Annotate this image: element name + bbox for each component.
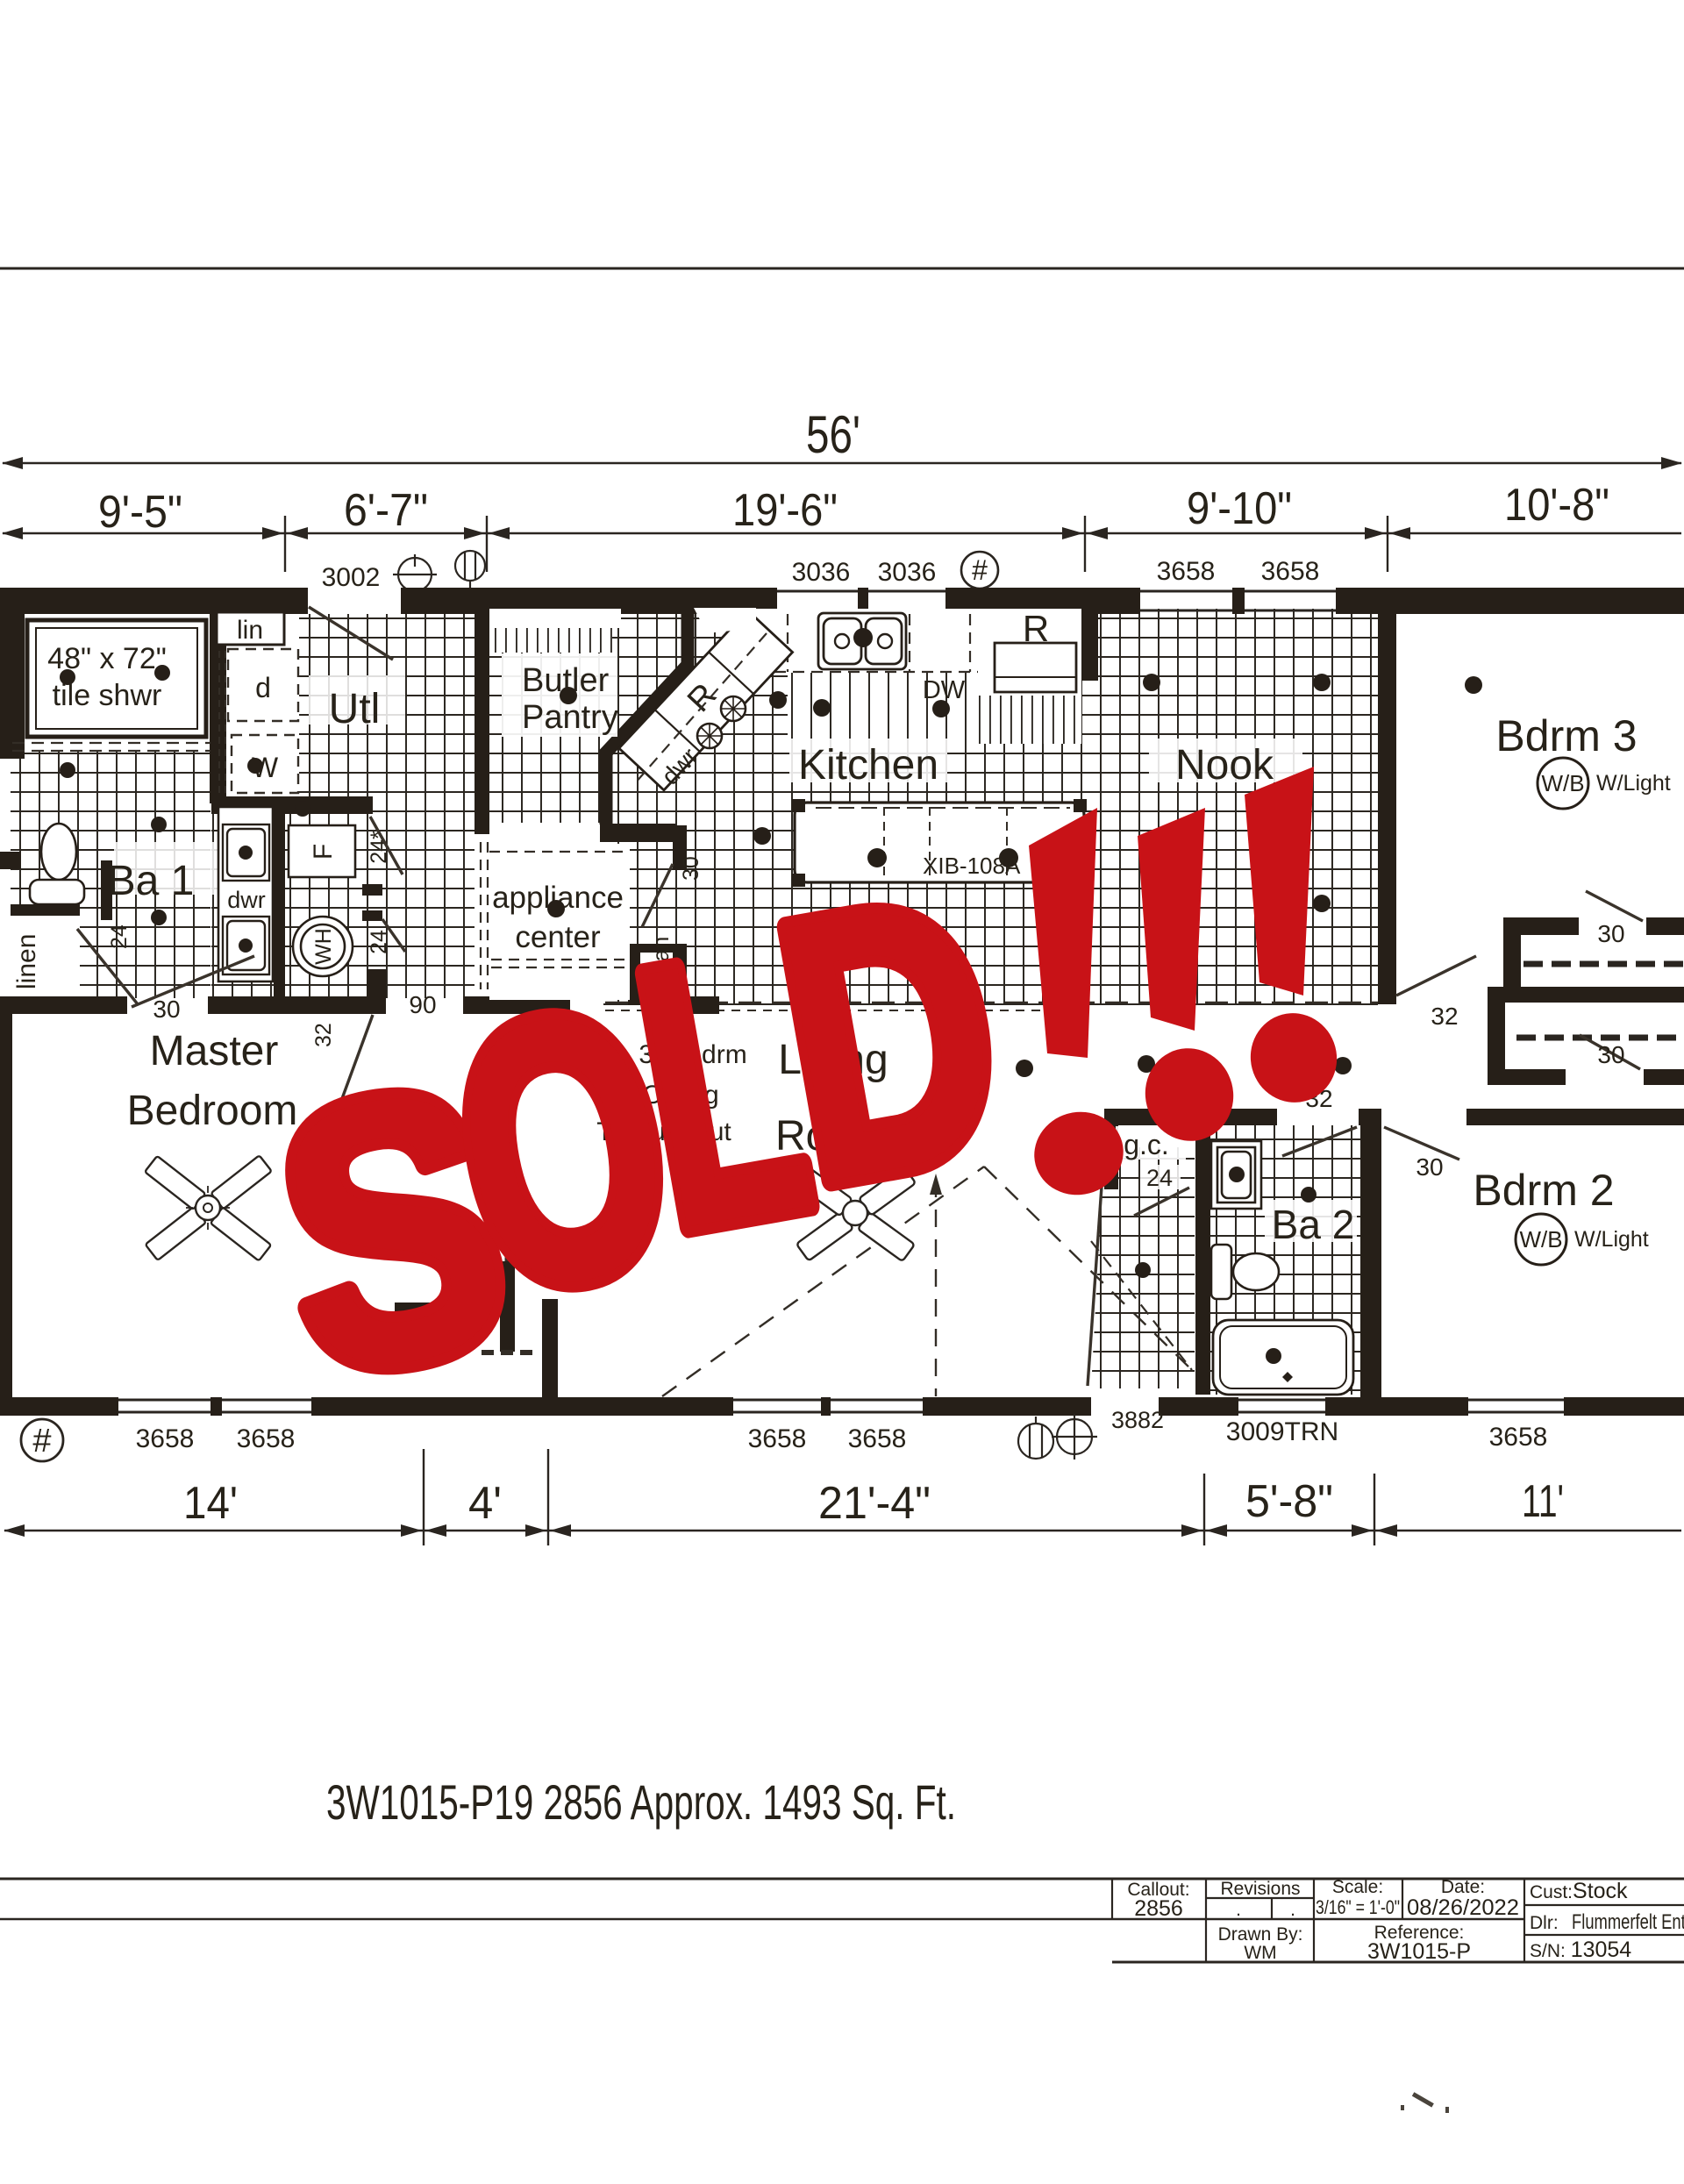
svg-text:.: . [1236, 1900, 1241, 1920]
svg-text:30: 30 [1597, 920, 1624, 947]
svg-text:Bdrm 2: Bdrm 2 [1473, 1166, 1614, 1215]
svg-text:Scale:: Scale: [1332, 1877, 1383, 1897]
svg-text:F: F [309, 844, 338, 860]
svg-text:WH: WH [311, 928, 336, 965]
svg-text:Ba 2: Ba 2 [1272, 1202, 1355, 1247]
svg-text:3658: 3658 [848, 1424, 907, 1453]
svg-text:Nook: Nook [1175, 742, 1274, 789]
svg-text:3658: 3658 [237, 1424, 296, 1453]
svg-text:W/Light: W/Light [1574, 1227, 1649, 1252]
svg-text:3658: 3658 [1157, 557, 1216, 586]
svg-text:2856: 2856 [1134, 1896, 1183, 1921]
svg-text:24: 24 [107, 924, 132, 949]
svg-text:WM: WM [1244, 1943, 1276, 1963]
svg-text:.: . [1290, 1900, 1295, 1920]
svg-text:g.c.: g.c. [1124, 1129, 1169, 1160]
svg-text:Bdrm 3: Bdrm 3 [1495, 711, 1637, 760]
svg-text:3658: 3658 [136, 1424, 195, 1453]
svg-text:Utl: Utl [329, 686, 381, 732]
svg-text:14': 14' [183, 1478, 238, 1529]
svg-text:Revisions: Revisions [1220, 1879, 1300, 1899]
svg-text:10'-8": 10'-8" [1504, 480, 1609, 531]
svg-text:Pantry: Pantry [522, 699, 618, 736]
svg-text:30: 30 [679, 856, 703, 881]
svg-text:30: 30 [1597, 1041, 1624, 1068]
svg-text:3009TRN: 3009TRN [1226, 1417, 1338, 1446]
svg-text:56': 56' [806, 405, 860, 464]
svg-text:lin: lin [237, 616, 263, 645]
svg-text:d: d [255, 672, 271, 703]
svg-text:linen: linen [12, 934, 41, 989]
svg-text:#: # [972, 554, 988, 586]
svg-text:W/Light: W/Light [1596, 771, 1671, 796]
svg-text:3W1015-P: 3W1015-P [1367, 1939, 1471, 1964]
svg-text:3036: 3036 [792, 558, 851, 587]
svg-text:21'-4": 21'-4" [818, 1478, 931, 1529]
svg-text:19'-6": 19'-6" [732, 485, 838, 536]
svg-text:08/26/2022: 08/26/2022 [1407, 1895, 1519, 1920]
svg-text:5'-8": 5'-8" [1245, 1476, 1333, 1527]
svg-text:Dlr:: Dlr: [1530, 1913, 1559, 1933]
svg-text:Drawn By:: Drawn By: [1218, 1924, 1303, 1945]
svg-text:30: 30 [153, 996, 180, 1023]
svg-text:#: # [32, 1423, 51, 1460]
svg-text:3658: 3658 [1261, 557, 1320, 586]
svg-text:Ba 1: Ba 1 [108, 858, 195, 904]
svg-text:3036: 3036 [878, 558, 937, 587]
svg-text:Date:: Date: [1441, 1877, 1485, 1897]
svg-text:3658: 3658 [1489, 1423, 1548, 1452]
svg-text:Kitchen: Kitchen [798, 742, 938, 789]
svg-text:11': 11' [1522, 1476, 1564, 1527]
svg-text:24: 24 [367, 930, 391, 954]
svg-text:3882: 3882 [1111, 1407, 1164, 1433]
svg-text:W/B: W/B [1519, 1226, 1562, 1253]
svg-text:dwr: dwr [227, 887, 266, 913]
svg-text:4': 4' [468, 1478, 502, 1529]
svg-text:3W1015-P19 2856 Approx. 1493: 3W1015-P19 2856 Approx. 1493 Sq. Ft. [326, 1774, 956, 1830]
svg-text:30: 30 [1416, 1153, 1443, 1181]
svg-text:24: 24 [1146, 1165, 1173, 1191]
svg-text:3002: 3002 [322, 563, 381, 592]
svg-text:3/16" = 1'-0": 3/16" = 1'-0" [1316, 1896, 1400, 1918]
svg-text:9'-10": 9'-10" [1187, 483, 1292, 534]
svg-text:3658: 3658 [748, 1424, 807, 1453]
svg-text:9'-5": 9'-5" [98, 487, 182, 538]
svg-text:32: 32 [1431, 1003, 1458, 1030]
svg-text:6'-7": 6'-7" [344, 485, 428, 536]
svg-text:S/N: 13054: S/N: 13054 [1530, 1938, 1631, 1962]
svg-text:DW: DW [923, 676, 966, 704]
svg-text:Cust:Stock: Cust:Stock [1530, 1879, 1628, 1903]
svg-text:W/B: W/B [1541, 770, 1584, 796]
svg-text:R: R [1023, 608, 1049, 649]
svg-text:Flummerfelt Ente: Flummerfelt Ente [1572, 1910, 1684, 1934]
